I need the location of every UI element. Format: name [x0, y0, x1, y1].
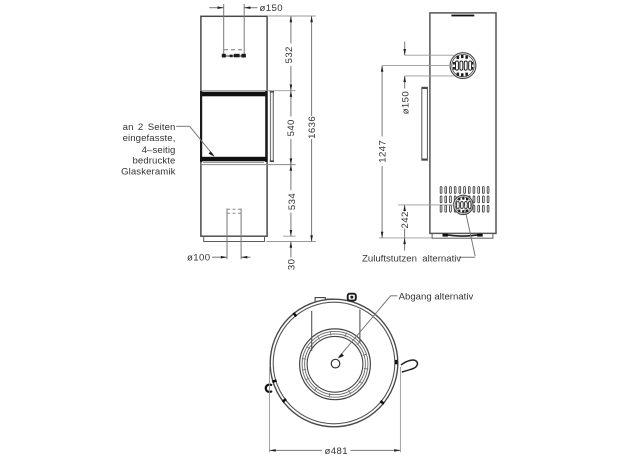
svg-text:1247: 1247: [377, 140, 388, 163]
svg-text:242: 242: [400, 211, 411, 228]
svg-text:ø150: ø150: [260, 3, 283, 14]
svg-text:532: 532: [284, 46, 295, 63]
svg-text:eingefasste,: eingefasste,: [123, 133, 176, 144]
svg-text:Glaskeramik: Glaskeramik: [121, 167, 176, 178]
svg-text:ø150: ø150: [401, 91, 412, 114]
svg-text:30: 30: [287, 259, 298, 270]
svg-text:an 2 Seiten: an 2 Seiten: [123, 122, 176, 133]
svg-text:540: 540: [286, 119, 297, 136]
svg-text:ø481: ø481: [325, 446, 348, 457]
svg-text:Abgang alternativ: Abgang alternativ: [399, 291, 474, 302]
svg-text:1636: 1636: [307, 116, 318, 139]
svg-text:534: 534: [287, 193, 298, 210]
svg-text:bedruckte: bedruckte: [132, 155, 175, 166]
svg-text:Zuluftstutzen alternativ: Zuluftstutzen alternativ: [362, 254, 461, 265]
svg-text:ø100: ø100: [187, 253, 210, 264]
svg-text:4–seitig: 4–seitig: [142, 145, 176, 156]
